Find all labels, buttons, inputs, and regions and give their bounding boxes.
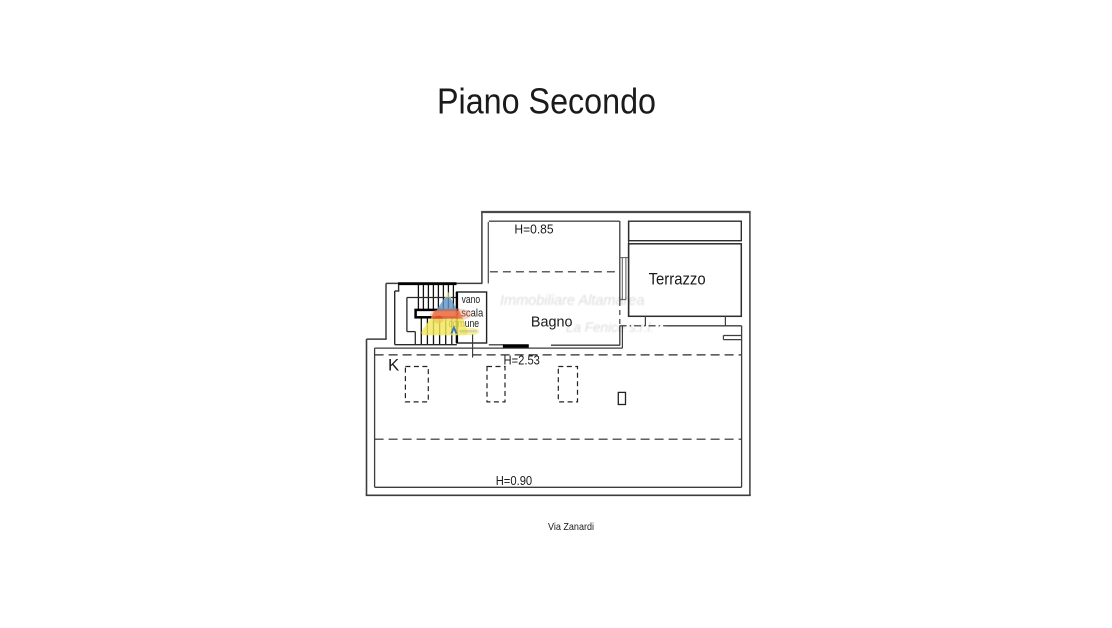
svg-text:Via Zanardi: Via Zanardi	[548, 522, 594, 533]
svg-text:H=0.90: H=0.90	[496, 473, 533, 488]
svg-text:Immobiliare Altamarea: Immobiliare Altamarea	[500, 293, 645, 309]
svg-text:Terrazzo: Terrazzo	[649, 271, 706, 289]
svg-text:H=0.85: H=0.85	[514, 221, 553, 236]
svg-text:H=2.53: H=2.53	[504, 352, 540, 367]
svg-text:La Fenice s.r.l.: La Fenice s.r.l.	[566, 320, 654, 335]
svg-text:Bagno: Bagno	[531, 314, 573, 330]
svg-text:Piano Secondo: Piano Secondo	[437, 81, 656, 122]
svg-text:vano: vano	[462, 294, 481, 306]
svg-text:K: K	[388, 356, 399, 375]
